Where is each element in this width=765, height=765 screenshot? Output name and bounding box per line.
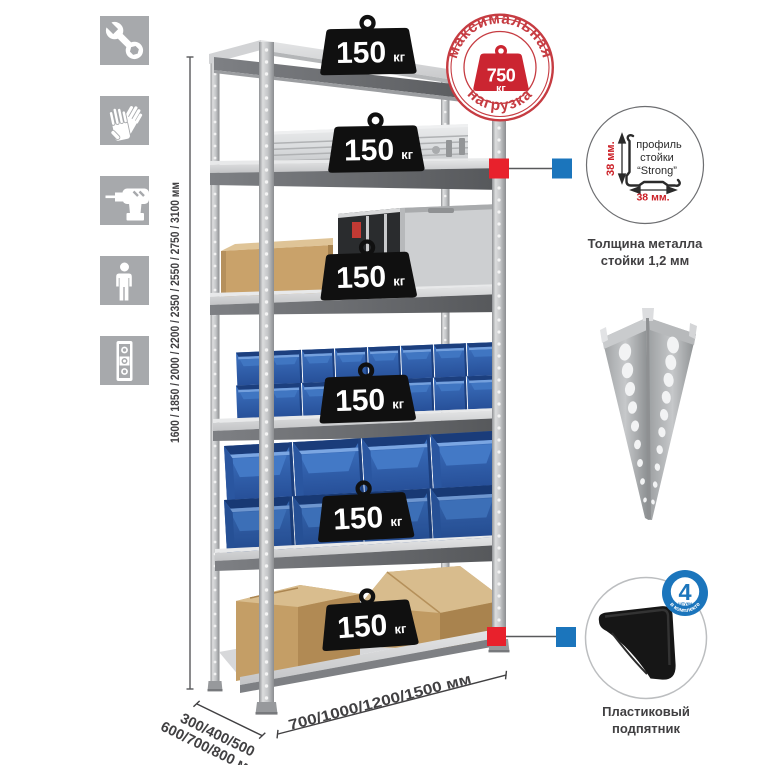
svg-text:стойки: стойки [640, 152, 674, 164]
svg-text:38 мм.: 38 мм. [636, 192, 669, 204]
svg-text:Толщина металла: Толщина металла [588, 236, 703, 251]
svg-text:подпятник: подпятник [612, 721, 681, 736]
svg-text:38 мм.: 38 мм. [605, 141, 617, 176]
svg-text:Пластиковый: Пластиковый [602, 704, 690, 719]
svg-text:стойки 1,2 мм: стойки 1,2 мм [601, 253, 689, 268]
svg-text:1600 / 1850 / 2000 / 2200 / 23: 1600 / 1850 / 2000 / 2200 / 2350 / 2550 … [170, 182, 182, 443]
svg-text:кг: кг [496, 83, 506, 95]
svg-text:штуки: штуки [678, 601, 692, 606]
svg-text:профиль: профиль [636, 139, 682, 151]
svg-text:“Strong”: “Strong” [637, 165, 677, 177]
